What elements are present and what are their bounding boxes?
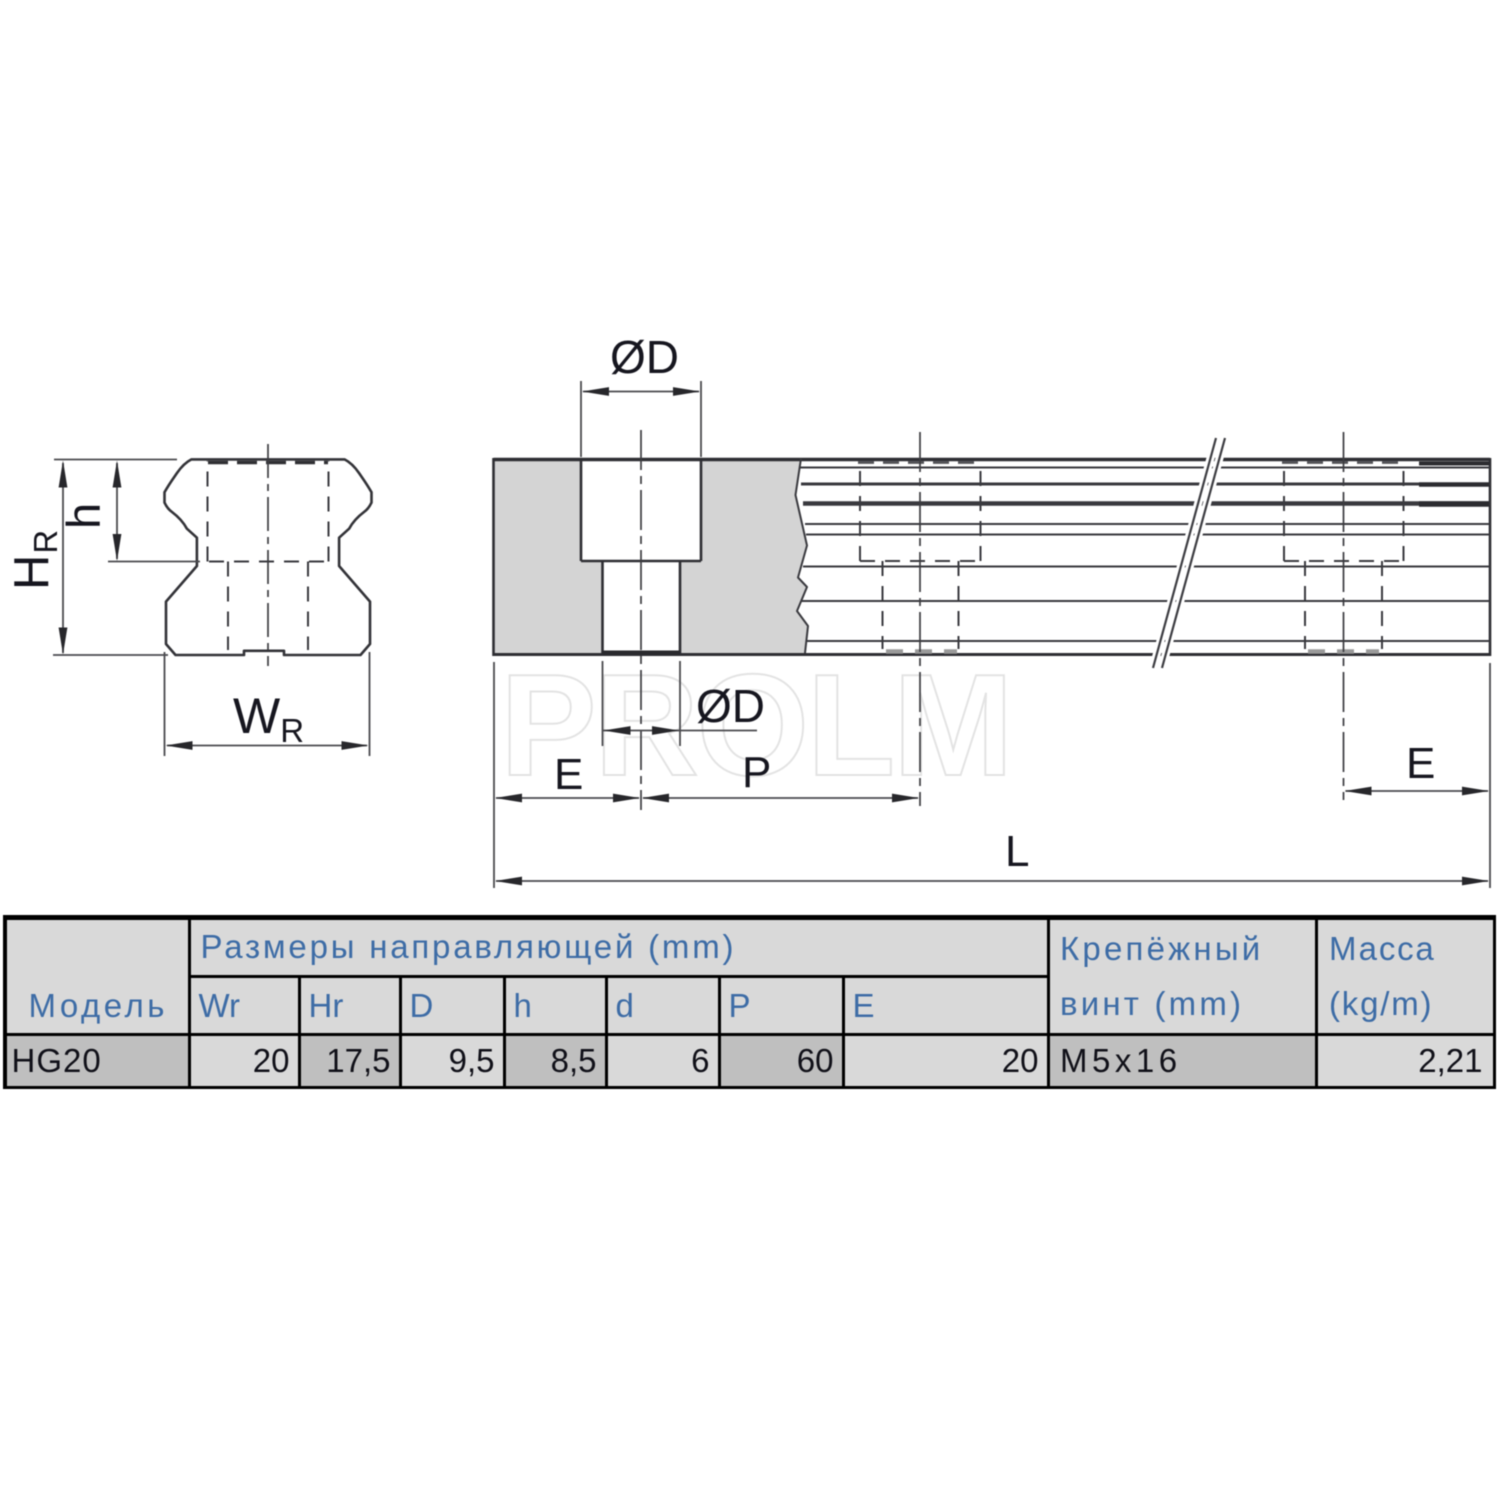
svg-text:WR: WR <box>233 688 304 749</box>
svg-text:L: L <box>1005 827 1029 876</box>
svg-text:HR: HR <box>5 529 64 590</box>
svg-text:ØD: ØD <box>696 680 765 732</box>
svg-text:E: E <box>554 750 583 799</box>
svg-text:h: h <box>57 503 110 529</box>
svg-text:ØD: ØD <box>610 331 679 383</box>
svg-text:P: P <box>742 748 771 797</box>
svg-text:E: E <box>1406 739 1435 788</box>
